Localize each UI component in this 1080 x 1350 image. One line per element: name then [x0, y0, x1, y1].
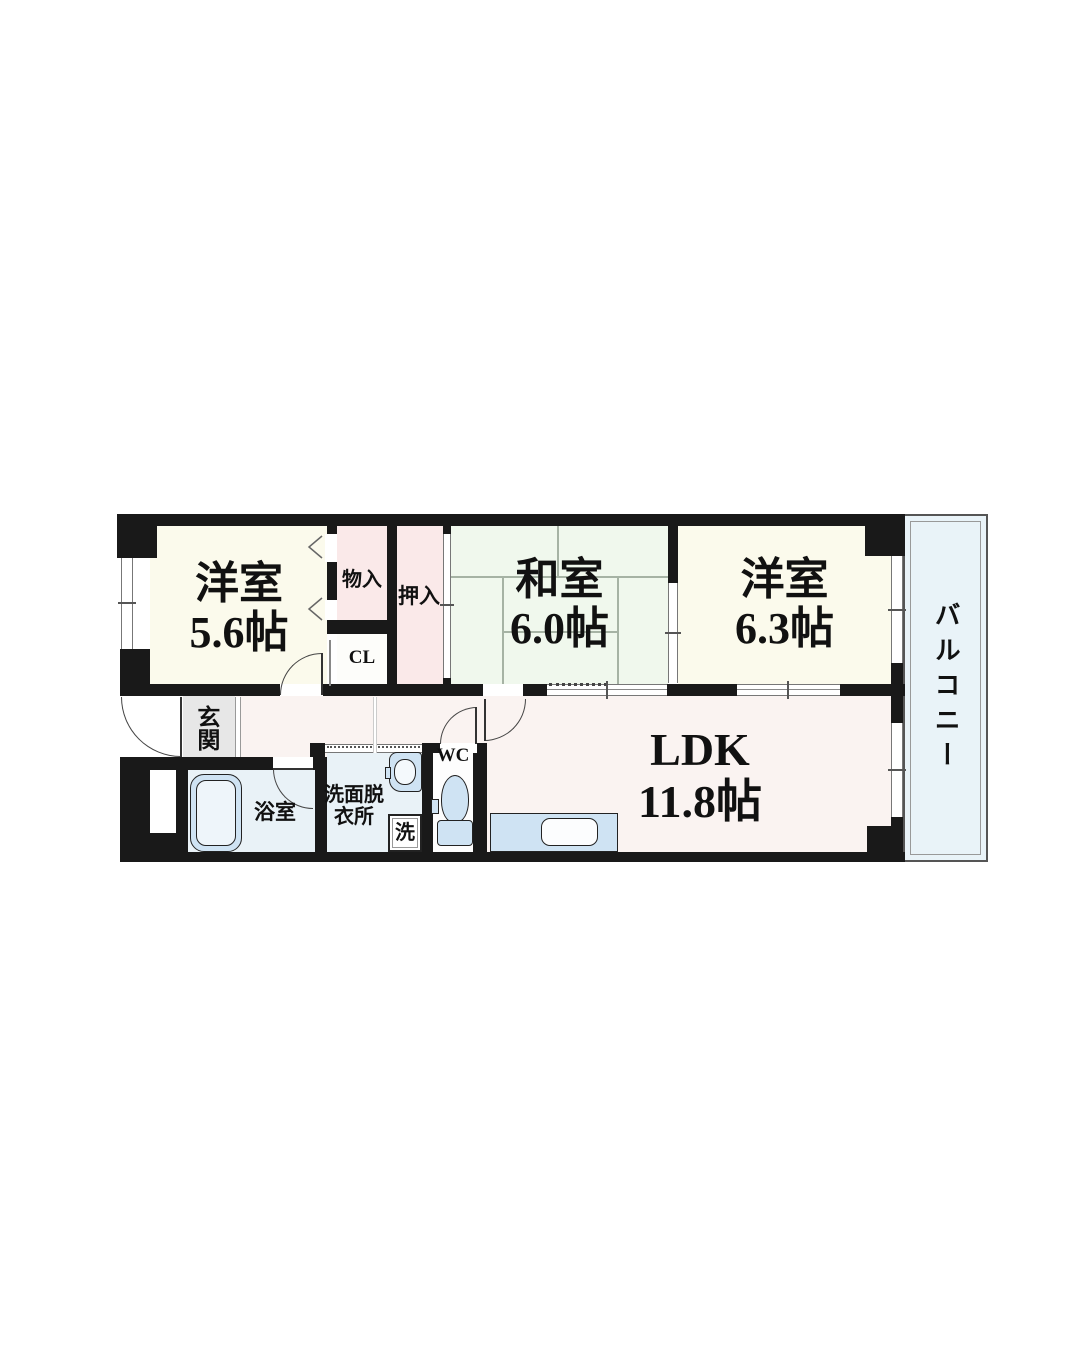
cl-label: CL — [337, 646, 387, 670]
bathtub-inner — [196, 780, 236, 846]
cl-door-line — [329, 640, 331, 686]
wall-monoire-nub — [327, 526, 337, 534]
washroom-label: 洗面脱 衣所 — [318, 780, 390, 832]
hall-ldk-door-leaf — [484, 699, 486, 741]
entrance-door-leaf — [180, 697, 182, 757]
entrance-step-edge — [235, 697, 241, 757]
slider-dotted — [549, 683, 607, 689]
room-name: 物入 — [342, 569, 382, 591]
room-name: 洋室 — [195, 559, 283, 608]
toilet-tank — [437, 820, 473, 846]
wall-bottom — [120, 852, 905, 862]
room-name: CL — [349, 647, 375, 668]
wall-oshiire-nub-bottom — [443, 678, 451, 686]
room-size: 5.6帖 — [190, 608, 289, 657]
wall-washroom-wc — [422, 743, 433, 852]
room-name: WC — [437, 745, 470, 766]
room-name: 浴室 — [254, 801, 296, 825]
wall-bath-top — [120, 757, 273, 770]
room-name-line2: 衣所 — [334, 806, 374, 828]
wall-row — [120, 684, 280, 696]
toilet-bowl — [441, 775, 469, 823]
room-name: バルコニー — [931, 601, 960, 776]
room-name: 玄関 — [193, 705, 219, 751]
wall-left-lower — [120, 757, 150, 852]
wall-corner-bottom-right — [867, 826, 903, 862]
west-room-large-label: 洋室 6.3帖 — [678, 548, 891, 660]
hall-frame-line — [373, 697, 377, 753]
wall-row — [840, 684, 905, 696]
room-size: 6.3帖 — [735, 604, 834, 653]
slider-tick — [787, 681, 789, 699]
washer-inner: 洗 — [392, 818, 418, 848]
wall-monoire-mid — [327, 562, 337, 600]
room-name-line1: 洗面脱 — [324, 784, 384, 806]
wall-top — [117, 514, 905, 526]
doorway-hall-ldk — [483, 684, 523, 696]
room-name: 押入 — [398, 585, 440, 609]
ldk-label: LDK 11.8帖 — [590, 714, 810, 838]
room-name: LDK — [650, 724, 750, 776]
wall-oshiire-nub-top — [443, 526, 451, 534]
balcony-label: バルコニー — [903, 560, 988, 816]
slider-tick — [606, 681, 608, 699]
entrance-label: 玄関 — [190, 699, 222, 757]
floor-plan-page: 洗 洋室 5.6帖 和室 6.0帖 洋室 6.3帖 LDK 11.8帖 物入 押… — [0, 0, 1080, 1350]
wc-label: WC — [433, 744, 473, 768]
wall-left-step — [150, 833, 176, 852]
toilet-handle — [431, 799, 439, 814]
wall-wc-ldk — [473, 743, 487, 852]
wall-washitsu-west2 — [668, 526, 678, 583]
wall-row — [323, 684, 483, 696]
bathroom-label: 浴室 — [238, 800, 312, 826]
wall-closet-column — [387, 526, 397, 696]
room-name: 洋室 — [741, 555, 829, 604]
window-tick — [118, 602, 136, 604]
wall-bath-left — [176, 757, 188, 852]
room-size: 11.8帖 — [638, 776, 762, 828]
vanity-faucet — [385, 767, 391, 779]
wall-row — [523, 684, 547, 696]
washing-machine-label: 洗 — [395, 822, 415, 844]
monoire-label: 物入 — [337, 568, 387, 592]
room-name: 和室 — [516, 555, 604, 604]
west-room-small-label: 洋室 5.6帖 — [150, 552, 328, 664]
oshiire-label: 押入 — [391, 584, 447, 610]
japanese-room-label: 和室 6.0帖 — [451, 548, 668, 660]
wall-row — [667, 684, 737, 696]
wc-door-leaf — [475, 707, 477, 744]
room-size: 6.0帖 — [510, 604, 609, 653]
bath-door-leaf — [273, 768, 313, 770]
vanity-bowl — [394, 759, 416, 785]
